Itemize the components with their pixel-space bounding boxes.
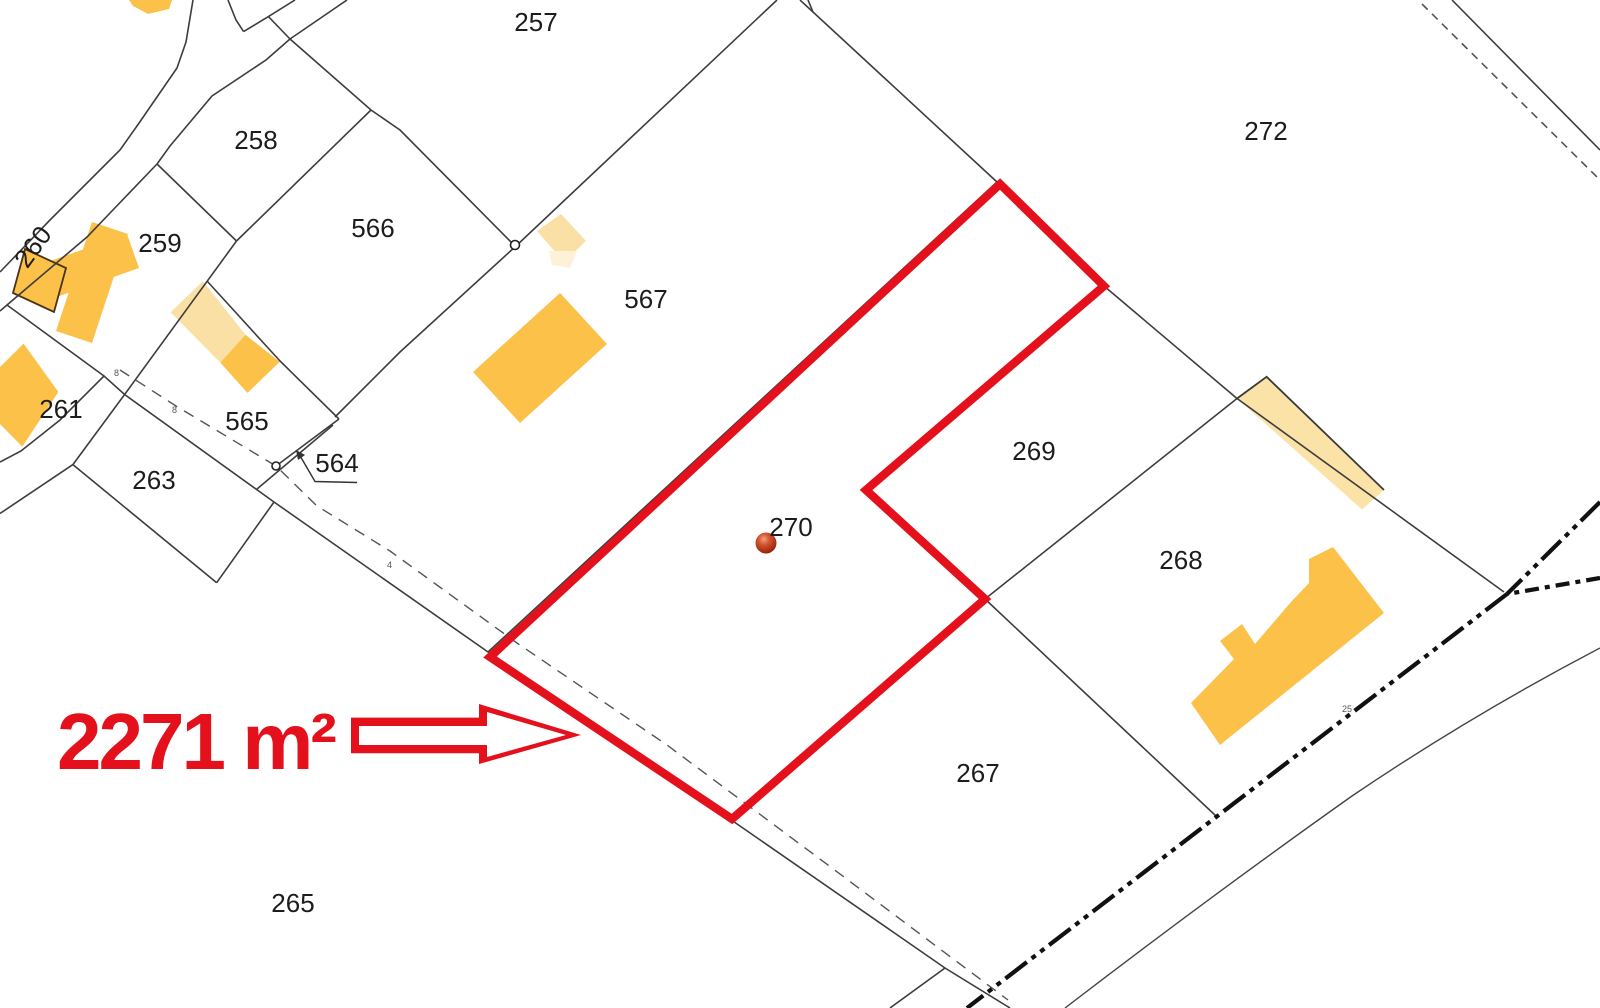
svg-text:265: 265	[271, 888, 314, 918]
svg-text:261: 261	[39, 394, 82, 424]
svg-text:259: 259	[138, 228, 181, 258]
svg-text:8: 8	[114, 368, 119, 378]
svg-text:567: 567	[624, 284, 667, 314]
svg-text:25: 25	[1342, 704, 1352, 714]
svg-text:258: 258	[234, 125, 277, 155]
svg-text:566: 566	[351, 213, 394, 243]
svg-text:263: 263	[132, 465, 175, 495]
svg-text:267: 267	[956, 758, 999, 788]
svg-text:2271 m²: 2271 m²	[57, 697, 335, 786]
svg-text:257: 257	[514, 7, 557, 37]
svg-text:272: 272	[1244, 116, 1287, 146]
svg-text:4: 4	[387, 560, 392, 570]
svg-text:8: 8	[172, 405, 177, 415]
svg-text:270: 270	[769, 512, 812, 542]
svg-text:564: 564	[315, 448, 358, 478]
svg-text:565: 565	[225, 406, 268, 436]
svg-text:269: 269	[1012, 436, 1055, 466]
svg-text:268: 268	[1159, 545, 1202, 575]
